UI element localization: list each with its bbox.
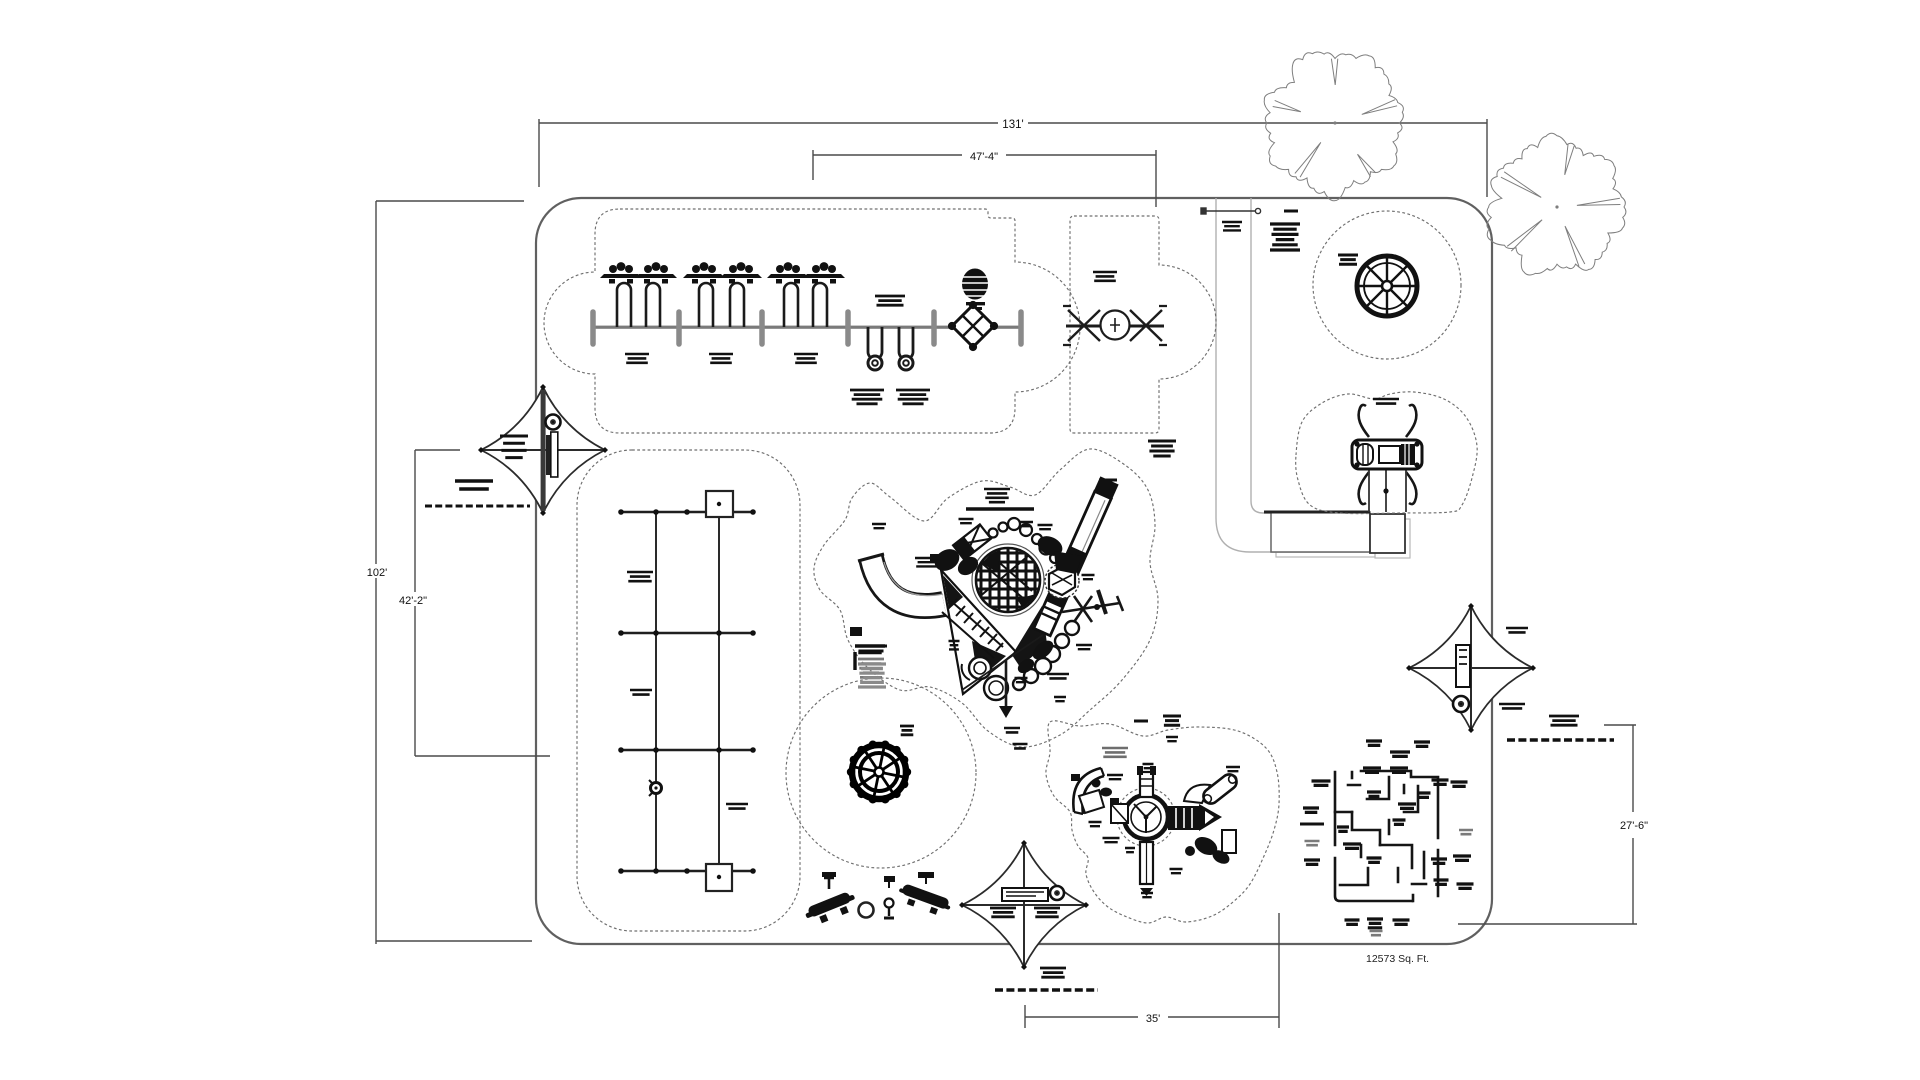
svg-text:27'-6": 27'-6" — [1620, 820, 1648, 832]
svg-text:35': 35' — [1146, 1013, 1160, 1025]
svg-text:42'-2": 42'-2" — [399, 595, 427, 607]
svg-text:131': 131' — [1002, 119, 1023, 131]
svg-text:102': 102' — [367, 567, 387, 579]
svg-text:12573 Sq. Ft.: 12573 Sq. Ft. — [1366, 953, 1429, 965]
svg-text:47'-4": 47'-4" — [970, 151, 998, 163]
